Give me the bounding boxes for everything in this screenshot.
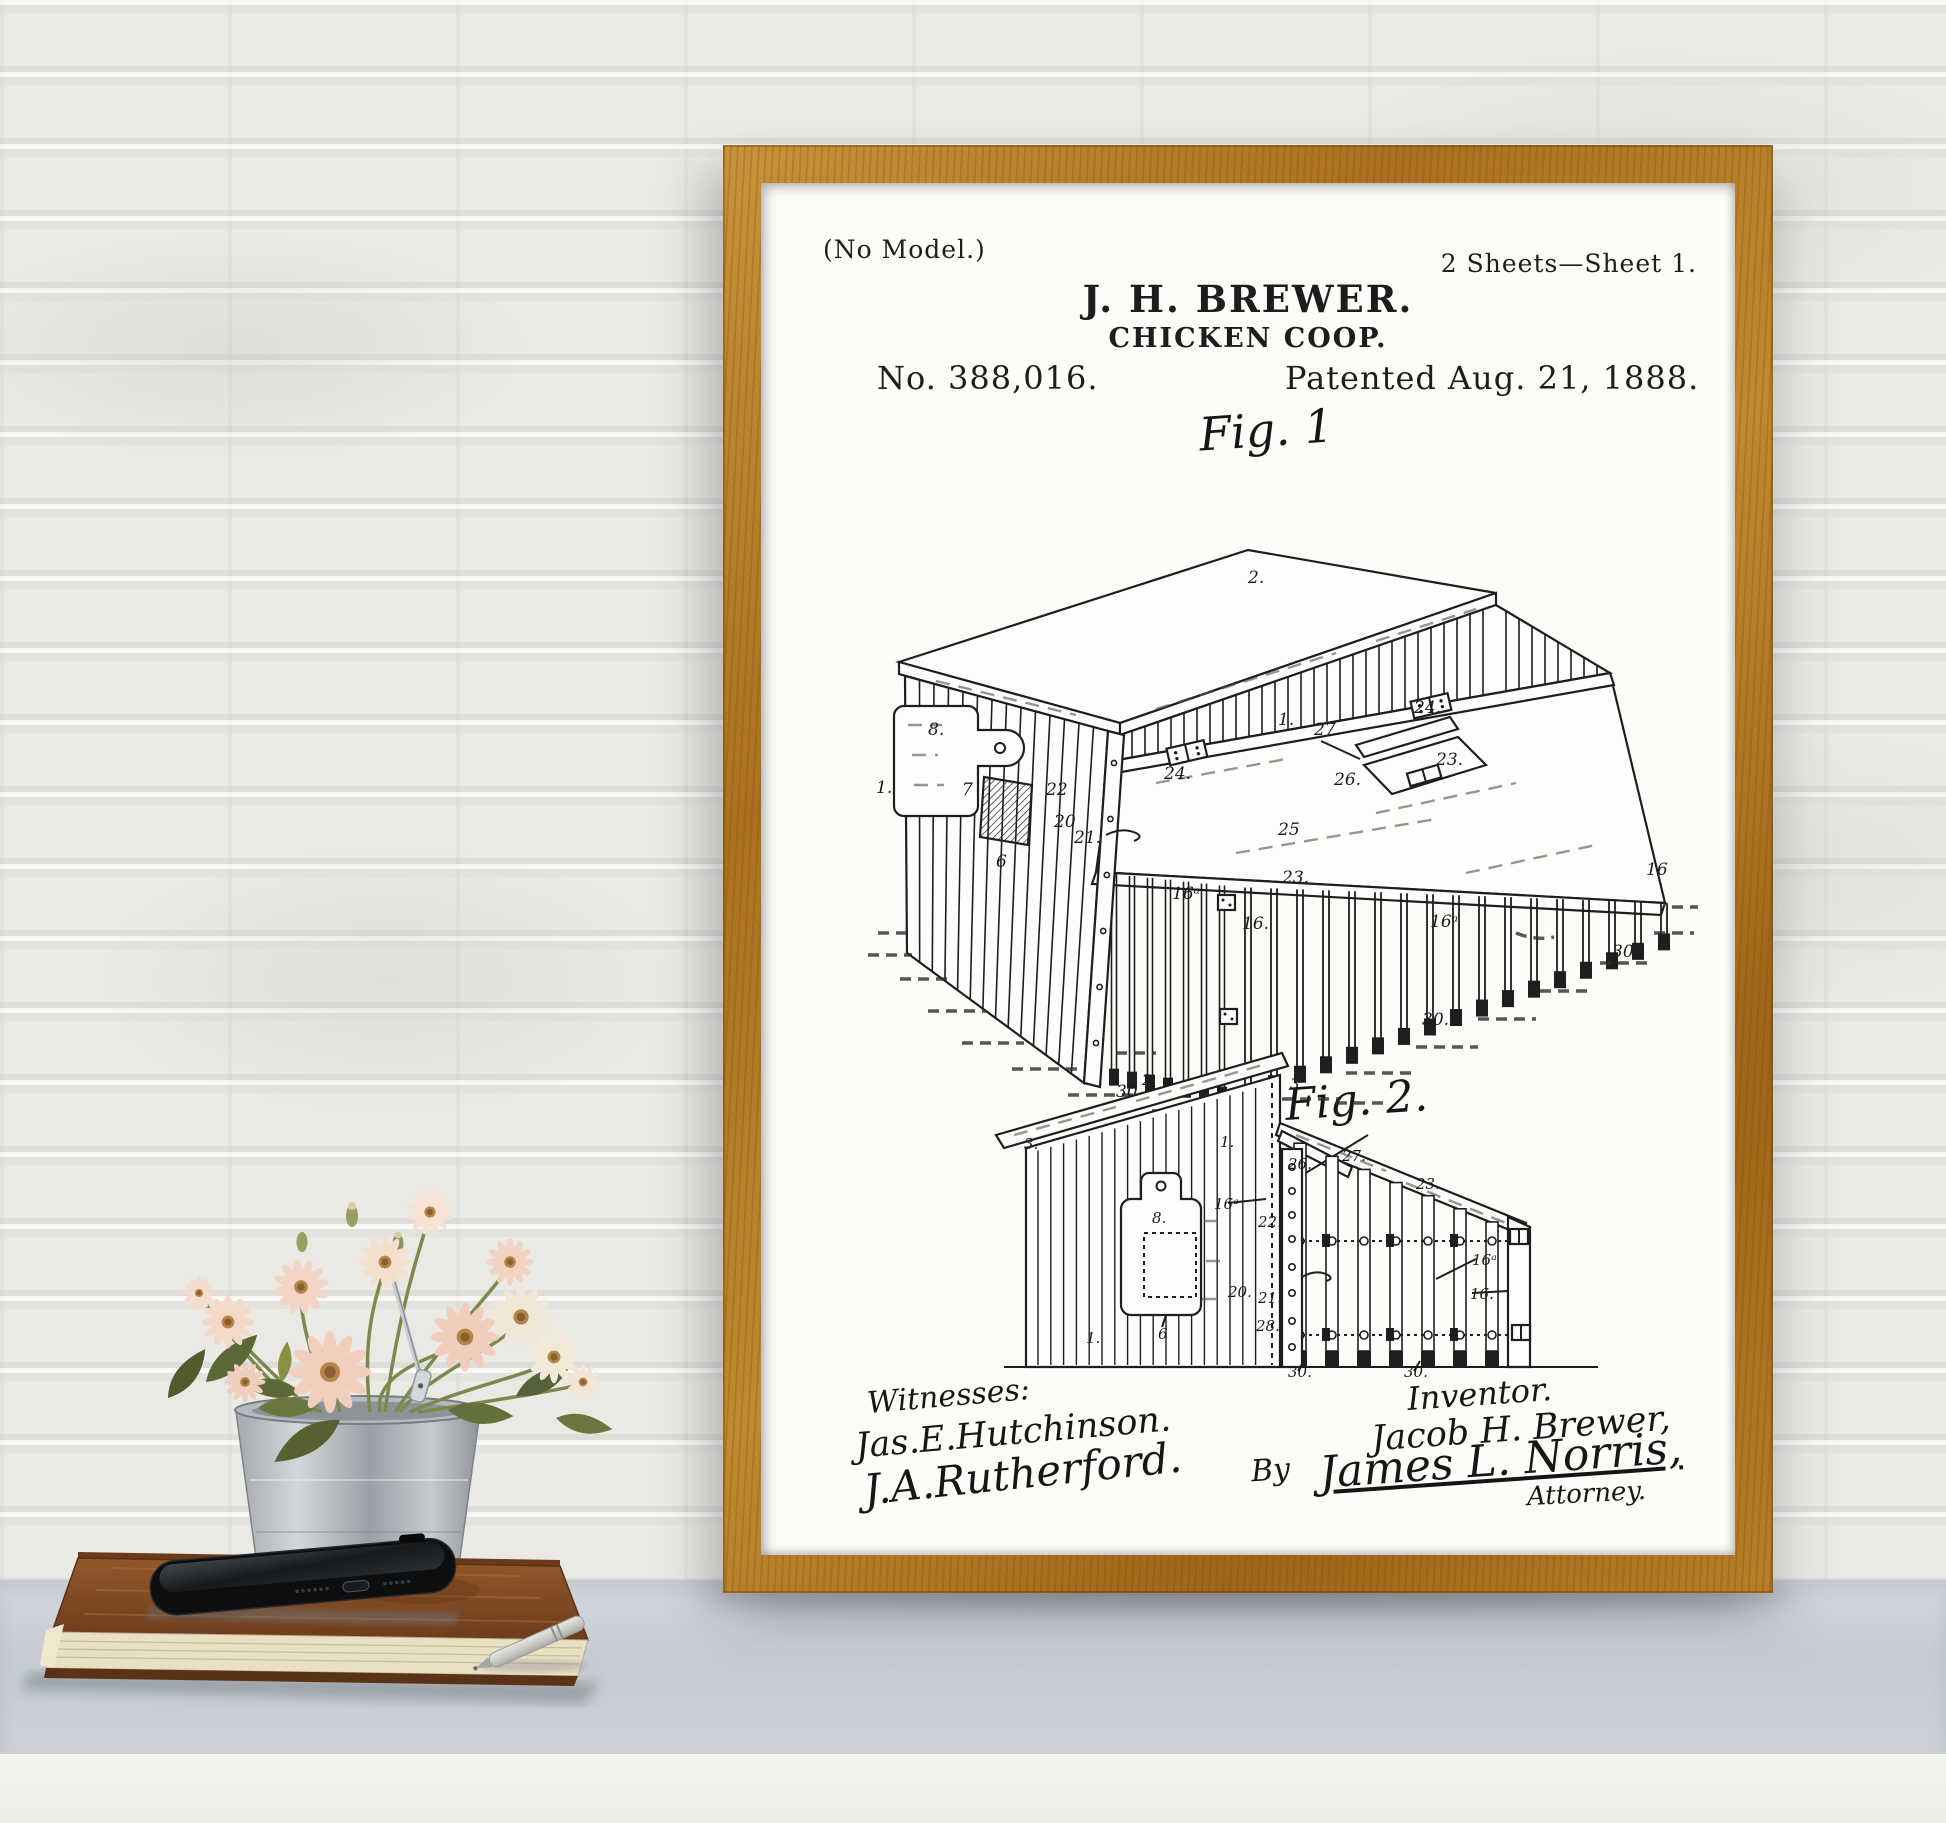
- reference-number: 1.: [1220, 1133, 1234, 1151]
- reference-number: 30.: [1288, 1363, 1312, 1381]
- patent-number: No. 388,016.: [877, 359, 1099, 397]
- reference-number: 30.: [1612, 942, 1639, 962]
- patent-print: (No Model.) 2 Sheets—Sheet 1. J. H. BREW…: [761, 183, 1735, 1555]
- bucket-handle: [394, 1282, 432, 1403]
- reference-number: 21.: [1257, 1289, 1282, 1307]
- reference-number: 16.: [1470, 1285, 1494, 1303]
- reference-number: 6: [1158, 1325, 1168, 1343]
- reference-number: 21.: [1073, 828, 1101, 848]
- reference-number: 2.: [1141, 1071, 1156, 1089]
- reference-number: 22.: [1257, 1213, 1282, 1231]
- reference-number: 16.: [1242, 914, 1269, 934]
- fence-hinges: [1218, 895, 1237, 1024]
- reference-number: 24.: [1163, 764, 1191, 784]
- figure-1-caption: Fig. 1: [1197, 398, 1335, 461]
- reference-number: 8.: [928, 720, 944, 740]
- patent-date: Patented Aug. 21, 1888.: [1285, 359, 1699, 397]
- reference-number: 1.: [1086, 1329, 1100, 1347]
- reference-number: 16ᵃ: [1472, 1251, 1497, 1269]
- reference-number: 6: [996, 852, 1007, 872]
- reference-number: 23.: [1435, 750, 1463, 770]
- reference-number: 22: [1045, 780, 1068, 800]
- reference-number: 25: [1277, 820, 1300, 840]
- figure-1-drawing: 2.1.1.8.76222021.24.24.27.26.2523.23.16ᵃ…: [816, 463, 1701, 1118]
- run-section: [1276, 1123, 1530, 1367]
- coop-vent: [980, 777, 1032, 845]
- picture-frame: (No Model.) 2 Sheets—Sheet 1. J. H. BREW…: [723, 145, 1773, 1593]
- patent-sheet-info: 2 Sheets—Sheet 1.: [1441, 249, 1697, 278]
- reference-number: 26.: [1287, 1155, 1312, 1173]
- reference-number: 1.: [876, 778, 892, 798]
- reference-number: 27.: [1341, 1147, 1366, 1165]
- reference-number: 20: [1053, 812, 1076, 832]
- reference-number: 16ᵃ: [1214, 1195, 1239, 1213]
- reference-number: 28.: [1255, 1317, 1280, 1335]
- attorney-title: Attorney.: [1526, 1476, 1646, 1512]
- reference-number: 16ᵃ: [1172, 884, 1200, 904]
- reference-number: 16: [1646, 860, 1668, 880]
- by-label: By: [1250, 1452, 1291, 1490]
- reference-number: 2.: [1247, 568, 1264, 588]
- reference-number: 30.: [1422, 1010, 1449, 1030]
- room-scene: (No Model.) 2 Sheets—Sheet 1. J. H. BREW…: [0, 0, 1946, 1823]
- reference-number: 3.: [1024, 1135, 1038, 1153]
- patent-title: CHICKEN COOP.: [761, 323, 1735, 354]
- patent-no-model: (No Model.): [823, 235, 986, 264]
- reference-number: 24.: [1413, 698, 1441, 718]
- reference-number: 3.: [1290, 1075, 1304, 1093]
- reference-number: 1.: [1278, 710, 1294, 730]
- reference-number: 16ᵃ: [1430, 912, 1458, 932]
- reference-number: 26.: [1333, 770, 1361, 790]
- reference-number: 23.: [1281, 868, 1309, 888]
- reference-number: 8.: [1152, 1209, 1166, 1227]
- still-life: [0, 1120, 790, 1823]
- patent-inventor-name: J. H. BREWER.: [761, 277, 1735, 321]
- figure-2-drawing: 3.2.3.1.1.8.616ᵃ22.20.21.28.26.27.23.16ᵃ…: [966, 1031, 1616, 1381]
- reference-number: 23.: [1415, 1175, 1440, 1193]
- reference-number: 20.: [1227, 1283, 1252, 1301]
- reference-number: 27.: [1313, 720, 1341, 740]
- reference-number: 7: [962, 780, 973, 800]
